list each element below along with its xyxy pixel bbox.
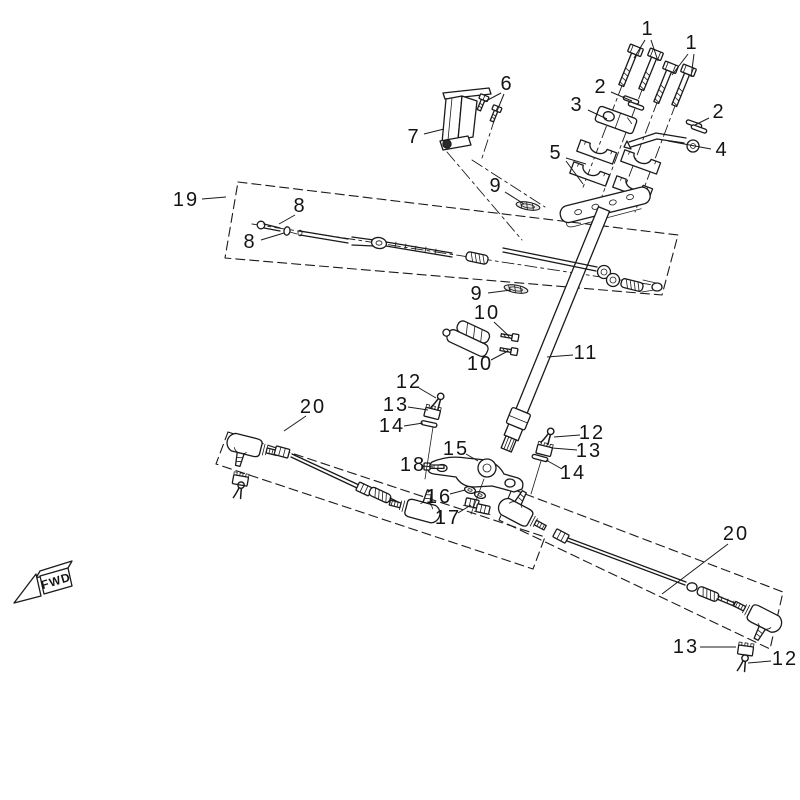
cotter-pin-12-right <box>541 427 555 446</box>
callout-leader-9 <box>505 192 524 204</box>
callout-label-17: 17 <box>435 507 461 529</box>
callout-leader-20 <box>284 416 306 431</box>
callout-label-8: 8 <box>293 195 306 217</box>
callout-leader-13 <box>552 448 577 450</box>
callout-label-16: 16 <box>426 486 452 508</box>
callout-label-1: 1 <box>641 18 654 40</box>
callout-label-10: 10 <box>474 302 500 324</box>
steering-assembly-diagram: FWD 112324567198899101011121314201213141… <box>0 0 800 800</box>
callout-label-14: 14 <box>560 462 586 484</box>
callout-label-3: 3 <box>570 94 583 116</box>
callout-label-18: 18 <box>400 454 426 476</box>
castle-nut-13-left-outer <box>232 472 249 486</box>
callout-label-9: 9 <box>489 175 502 197</box>
callout-label-11: 11 <box>574 342 599 364</box>
callout-label-2: 2 <box>594 76 607 98</box>
callout-label-10: 10 <box>467 353 493 375</box>
callout-label-6: 6 <box>500 73 513 95</box>
callout-label-13: 13 <box>576 440 602 462</box>
callout-leader-2 <box>695 118 709 125</box>
tie-rod-left-20 <box>222 432 445 525</box>
upper-clamp-3 <box>594 106 637 135</box>
callout-leader-10 <box>491 351 508 360</box>
callout-label-12: 12 <box>772 648 798 670</box>
callout-label-7: 7 <box>407 126 420 148</box>
callout-label-4: 4 <box>715 139 728 161</box>
fwd-arrow: FWD <box>14 561 73 603</box>
callout-leader-12 <box>748 661 771 663</box>
callout-leader-16 <box>450 490 465 494</box>
callout-label-1: 1 <box>685 32 698 54</box>
callout-leader-19 <box>202 197 226 199</box>
callout-label-20: 20 <box>723 523 749 545</box>
steering-shaft-11 <box>497 205 614 453</box>
cotter-pin-12-right-outer <box>737 654 749 673</box>
washer-9-lower <box>504 283 529 295</box>
callout-label-5: 5 <box>549 142 562 164</box>
callout-label-20: 20 <box>300 396 326 418</box>
castle-nut-13-right-outer <box>737 642 754 656</box>
washers-2 <box>623 95 707 133</box>
callout-leader-14 <box>404 423 423 426</box>
callout-label-13: 13 <box>673 636 699 658</box>
callout-label-15: 15 <box>443 438 469 460</box>
callout-label-13: 13 <box>383 394 409 416</box>
washer-14-left <box>421 420 437 427</box>
nuts-17 <box>463 497 491 514</box>
exploded-parts-diagram: FWD 112324567198899101011121314201213141… <box>0 0 800 800</box>
callout-leader-9 <box>488 290 511 293</box>
castle-nut-13-right <box>536 441 553 456</box>
callout-leader-12 <box>554 435 580 437</box>
callout-label-14: 14 <box>379 415 405 437</box>
tie-rod-right-20 <box>495 484 784 646</box>
callout-leader-8 <box>261 233 284 240</box>
callout-leader-7 <box>424 129 444 134</box>
callout-label-2: 2 <box>712 101 725 123</box>
callout-label-12: 12 <box>396 371 422 393</box>
callout-label-8: 8 <box>243 231 256 253</box>
callout-label-19: 19 <box>173 189 199 211</box>
